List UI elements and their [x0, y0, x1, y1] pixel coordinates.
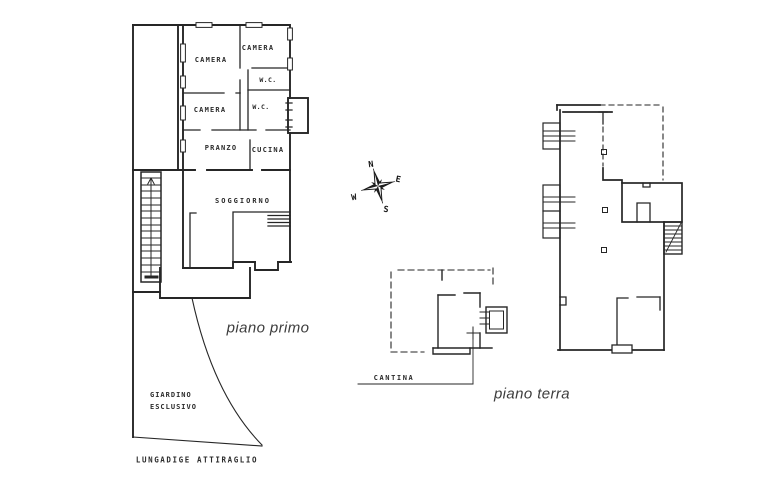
garden-label: GIARDINO ESCLUSIVO — [150, 389, 197, 413]
caption-piano-primo: piano primo — [227, 320, 310, 337]
piano-terra-plan — [543, 105, 682, 353]
piano-primo-plan — [133, 23, 308, 446]
room-label-soggiorno: SOGGIORNO — [215, 197, 271, 205]
room-label-wc-2: W.C. — [252, 103, 269, 111]
cantina-label: CANTINA — [374, 374, 415, 382]
staircase-piano-primo — [141, 172, 161, 282]
compass-rose — [361, 169, 395, 204]
room-label-wc-1: W.C. — [259, 76, 276, 84]
staircase-piano-terra — [664, 222, 682, 254]
room-label-camera-3: CAMERA — [194, 106, 227, 114]
piano-primo-windows — [181, 23, 293, 152]
cantina-plan — [358, 268, 507, 384]
garden-label-line1: GIARDINO — [150, 389, 197, 401]
garden-label-line2: ESCLUSIVO — [150, 401, 197, 413]
floorplan-sheet: CAMERA CAMERA W.C. CAMERA W.C. PRANZO CU… — [0, 0, 764, 492]
caption-piano-terra: piano terra — [494, 386, 570, 403]
floorplan-linework — [0, 0, 764, 492]
room-label-camera-2: CAMERA — [242, 44, 275, 52]
room-label-cucina: CUCINA — [252, 146, 285, 154]
piano-terra-dashed-outline — [600, 105, 663, 180]
room-label-camera-1: CAMERA — [195, 56, 228, 64]
piano-terra-window-bays — [543, 123, 575, 238]
piano-terra-outer-walls — [557, 105, 682, 350]
room-label-pranzo: PRANZO — [205, 144, 238, 152]
piano-terra-interior — [560, 112, 660, 353]
street-label: LUNGADIGE ATTIRAGLIO — [136, 456, 258, 465]
